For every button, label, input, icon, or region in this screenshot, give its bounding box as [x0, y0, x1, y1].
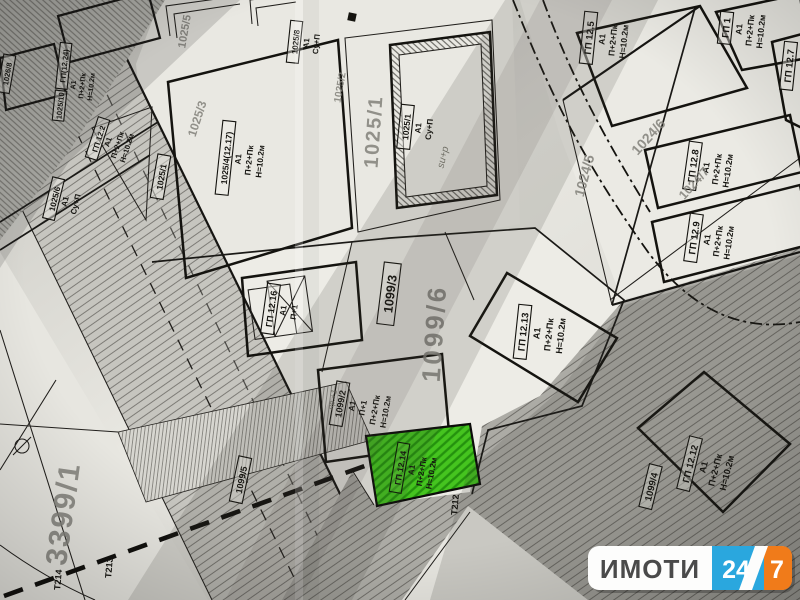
logo-brand-text: ИМОТИ: [600, 554, 700, 584]
imoti247-watermark: ИМОТИ 24 7: [588, 546, 795, 593]
photo-vignette: [0, 0, 800, 600]
logo-24-text: 24: [722, 556, 750, 584]
logo-7-text: 7: [770, 556, 784, 584]
cadastral-map-photo: ГП 12.5 А1 П+2+Пк Н=10.2м ГП 1 А1 П+2+Пк…: [0, 0, 800, 600]
map-canvas: ГП 12.5 А1 П+2+Пк Н=10.2м ГП 1 А1 П+2+Пк…: [0, 0, 800, 600]
